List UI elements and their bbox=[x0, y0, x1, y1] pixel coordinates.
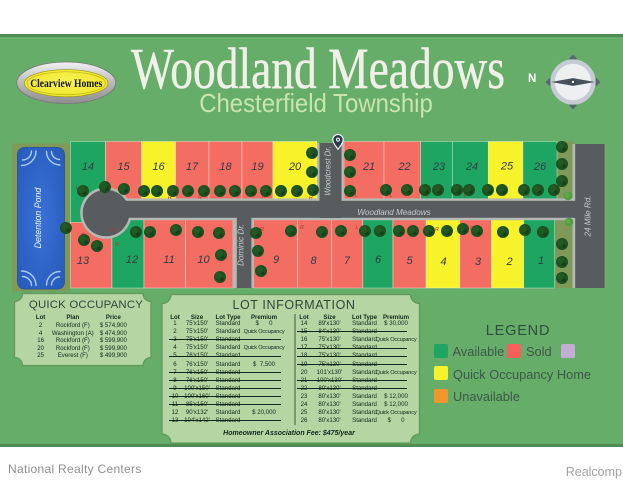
svg-text:17: 17 bbox=[186, 161, 199, 173]
svg-text:1: 1 bbox=[538, 255, 544, 267]
svg-text:19: 19 bbox=[251, 161, 263, 173]
svg-text:Woodland Meadows: Woodland Meadows bbox=[357, 208, 430, 217]
svg-text:11: 11 bbox=[163, 254, 174, 266]
svg-text:13: 13 bbox=[77, 255, 90, 267]
svg-text:Detention Pond: Detention Pond bbox=[33, 187, 43, 249]
svg-text:Woodcrest Dr.: Woodcrest Dr. bbox=[324, 146, 333, 196]
svg-text:3: 3 bbox=[475, 256, 482, 268]
svg-text:16: 16 bbox=[152, 161, 165, 173]
svg-text:10: 10 bbox=[197, 254, 210, 266]
svg-text:14: 14 bbox=[82, 161, 94, 173]
svg-text:15: 15 bbox=[117, 161, 130, 173]
svg-text:R: R bbox=[300, 225, 304, 231]
svg-text:12: 12 bbox=[126, 254, 138, 266]
svg-text:25: 25 bbox=[500, 161, 514, 173]
svg-text:24: 24 bbox=[465, 161, 478, 173]
svg-text:23: 23 bbox=[432, 161, 446, 173]
svg-text:22: 22 bbox=[397, 161, 410, 173]
svg-text:9: 9 bbox=[273, 254, 279, 266]
svg-text:R: R bbox=[435, 227, 439, 233]
svg-text:18: 18 bbox=[219, 161, 232, 173]
svg-text:Dominic Dr.: Dominic Dr. bbox=[237, 224, 246, 266]
svg-text:20: 20 bbox=[288, 161, 302, 173]
svg-text:6: 6 bbox=[375, 254, 382, 266]
svg-text:Clearview Homes: Clearview Homes bbox=[30, 78, 102, 90]
svg-text:24 Mile Rd.: 24 Mile Rd. bbox=[584, 196, 593, 238]
svg-text:5: 5 bbox=[406, 255, 413, 267]
svg-text:2: 2 bbox=[505, 256, 512, 268]
svg-text:R: R bbox=[111, 228, 115, 234]
svg-text:4: 4 bbox=[440, 256, 446, 268]
svg-text:L: L bbox=[355, 225, 358, 231]
svg-text:7: 7 bbox=[344, 255, 351, 267]
svg-text:26: 26 bbox=[533, 161, 547, 173]
svg-text:21: 21 bbox=[362, 161, 375, 173]
svg-text:R: R bbox=[115, 242, 119, 248]
svg-text:8: 8 bbox=[310, 255, 317, 267]
